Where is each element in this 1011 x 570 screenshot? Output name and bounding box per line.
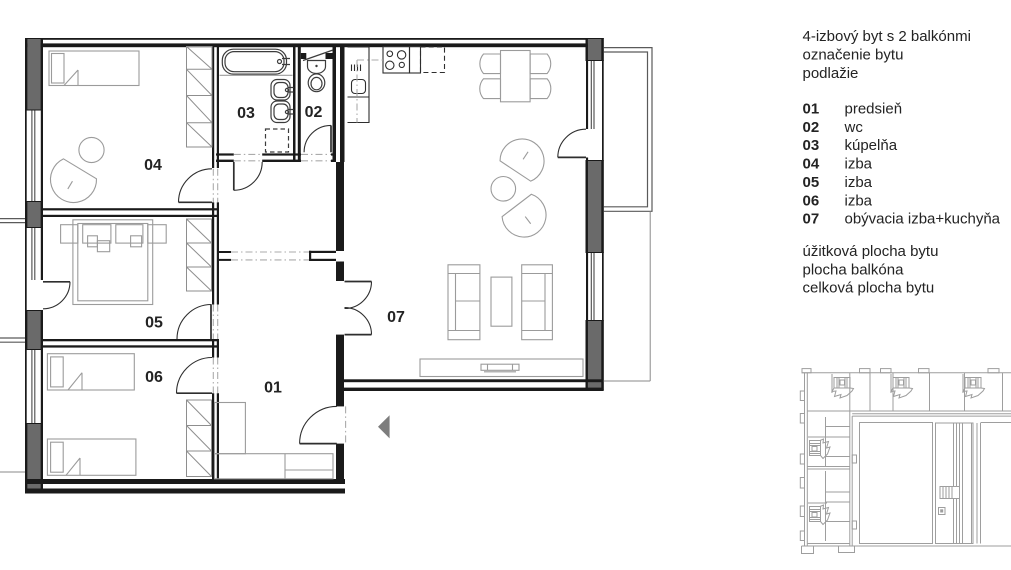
svg-text:celková plocha bytu: celková plocha bytu (803, 280, 935, 297)
svg-text:05: 05 (803, 174, 820, 191)
svg-text:04: 04 (144, 157, 162, 174)
svg-text:izba: izba (845, 174, 873, 191)
svg-text:predsieň: predsieň (845, 101, 903, 118)
svg-text:07: 07 (387, 309, 405, 326)
svg-text:06: 06 (803, 192, 820, 209)
svg-text:úžitková plocha bytu: úžitková plocha bytu (803, 243, 939, 260)
svg-text:03: 03 (237, 105, 255, 122)
svg-text:izba: izba (845, 192, 873, 209)
svg-text:05: 05 (145, 315, 163, 332)
svg-text:plocha balkóna: plocha balkóna (803, 261, 905, 278)
svg-text:obývacia izba+kuchyňa: obývacia izba+kuchyňa (845, 211, 1001, 228)
svg-text:podlažie: podlažie (803, 65, 859, 82)
svg-text:označenie bytu: označenie bytu (803, 46, 904, 63)
svg-text:04: 04 (803, 156, 820, 173)
svg-text:izba: izba (845, 156, 873, 173)
svg-text:03: 03 (803, 137, 820, 154)
svg-text:4-izbový byt s 2 balkónmi: 4-izbový byt s 2 balkónmi (803, 28, 971, 45)
svg-text:wc: wc (844, 119, 864, 136)
svg-text:07: 07 (803, 211, 820, 228)
svg-text:kúpelňa: kúpelňa (845, 137, 898, 154)
svg-text:02: 02 (305, 104, 323, 121)
svg-text:01: 01 (803, 101, 820, 118)
svg-text:02: 02 (803, 119, 820, 136)
svg-text:06: 06 (145, 369, 163, 386)
svg-text:01: 01 (264, 380, 282, 397)
